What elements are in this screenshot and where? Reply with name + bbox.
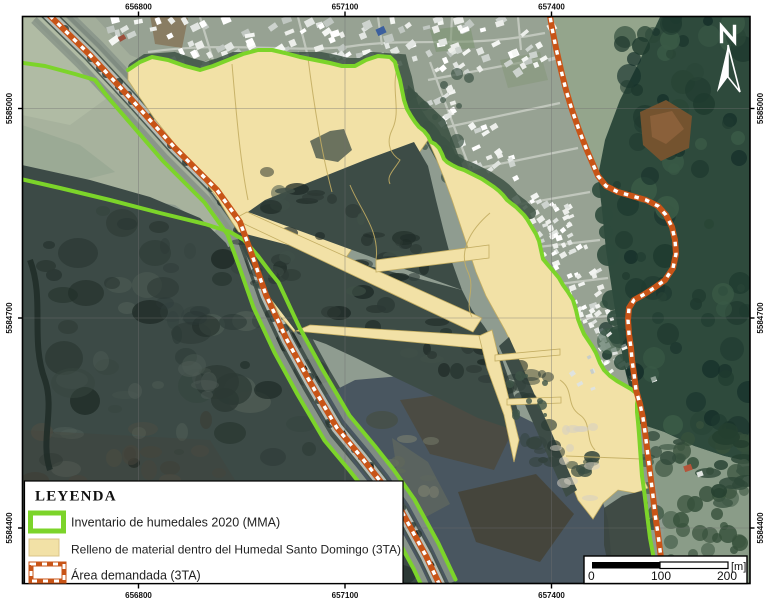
svg-text:656800: 656800 bbox=[125, 591, 152, 600]
svg-text:200: 200 bbox=[717, 569, 737, 583]
svg-text:Área demandada (3TA): Área demandada (3TA) bbox=[71, 568, 201, 583]
svg-text:657400: 657400 bbox=[538, 591, 565, 600]
svg-text:5584700: 5584700 bbox=[756, 302, 765, 334]
svg-text:5585000: 5585000 bbox=[5, 92, 14, 124]
svg-text:LEYENDA: LEYENDA bbox=[35, 489, 117, 505]
svg-text:5584700: 5584700 bbox=[5, 302, 14, 334]
svg-text:Relleno de material dentro del: Relleno de material dentro del Humedal S… bbox=[71, 543, 401, 557]
svg-text:100: 100 bbox=[651, 569, 671, 583]
svg-text:657100: 657100 bbox=[332, 591, 359, 600]
svg-text:5584400: 5584400 bbox=[756, 512, 765, 544]
svg-text:657100: 657100 bbox=[332, 3, 359, 12]
svg-text:656800: 656800 bbox=[125, 3, 152, 12]
svg-text:5584400: 5584400 bbox=[5, 512, 14, 544]
svg-text:657400: 657400 bbox=[538, 3, 565, 12]
svg-text:0: 0 bbox=[588, 569, 595, 583]
svg-text:5585000: 5585000 bbox=[756, 92, 765, 124]
svg-text:Inventario de humedales 2020 (: Inventario de humedales 2020 (MMA) bbox=[71, 516, 280, 530]
